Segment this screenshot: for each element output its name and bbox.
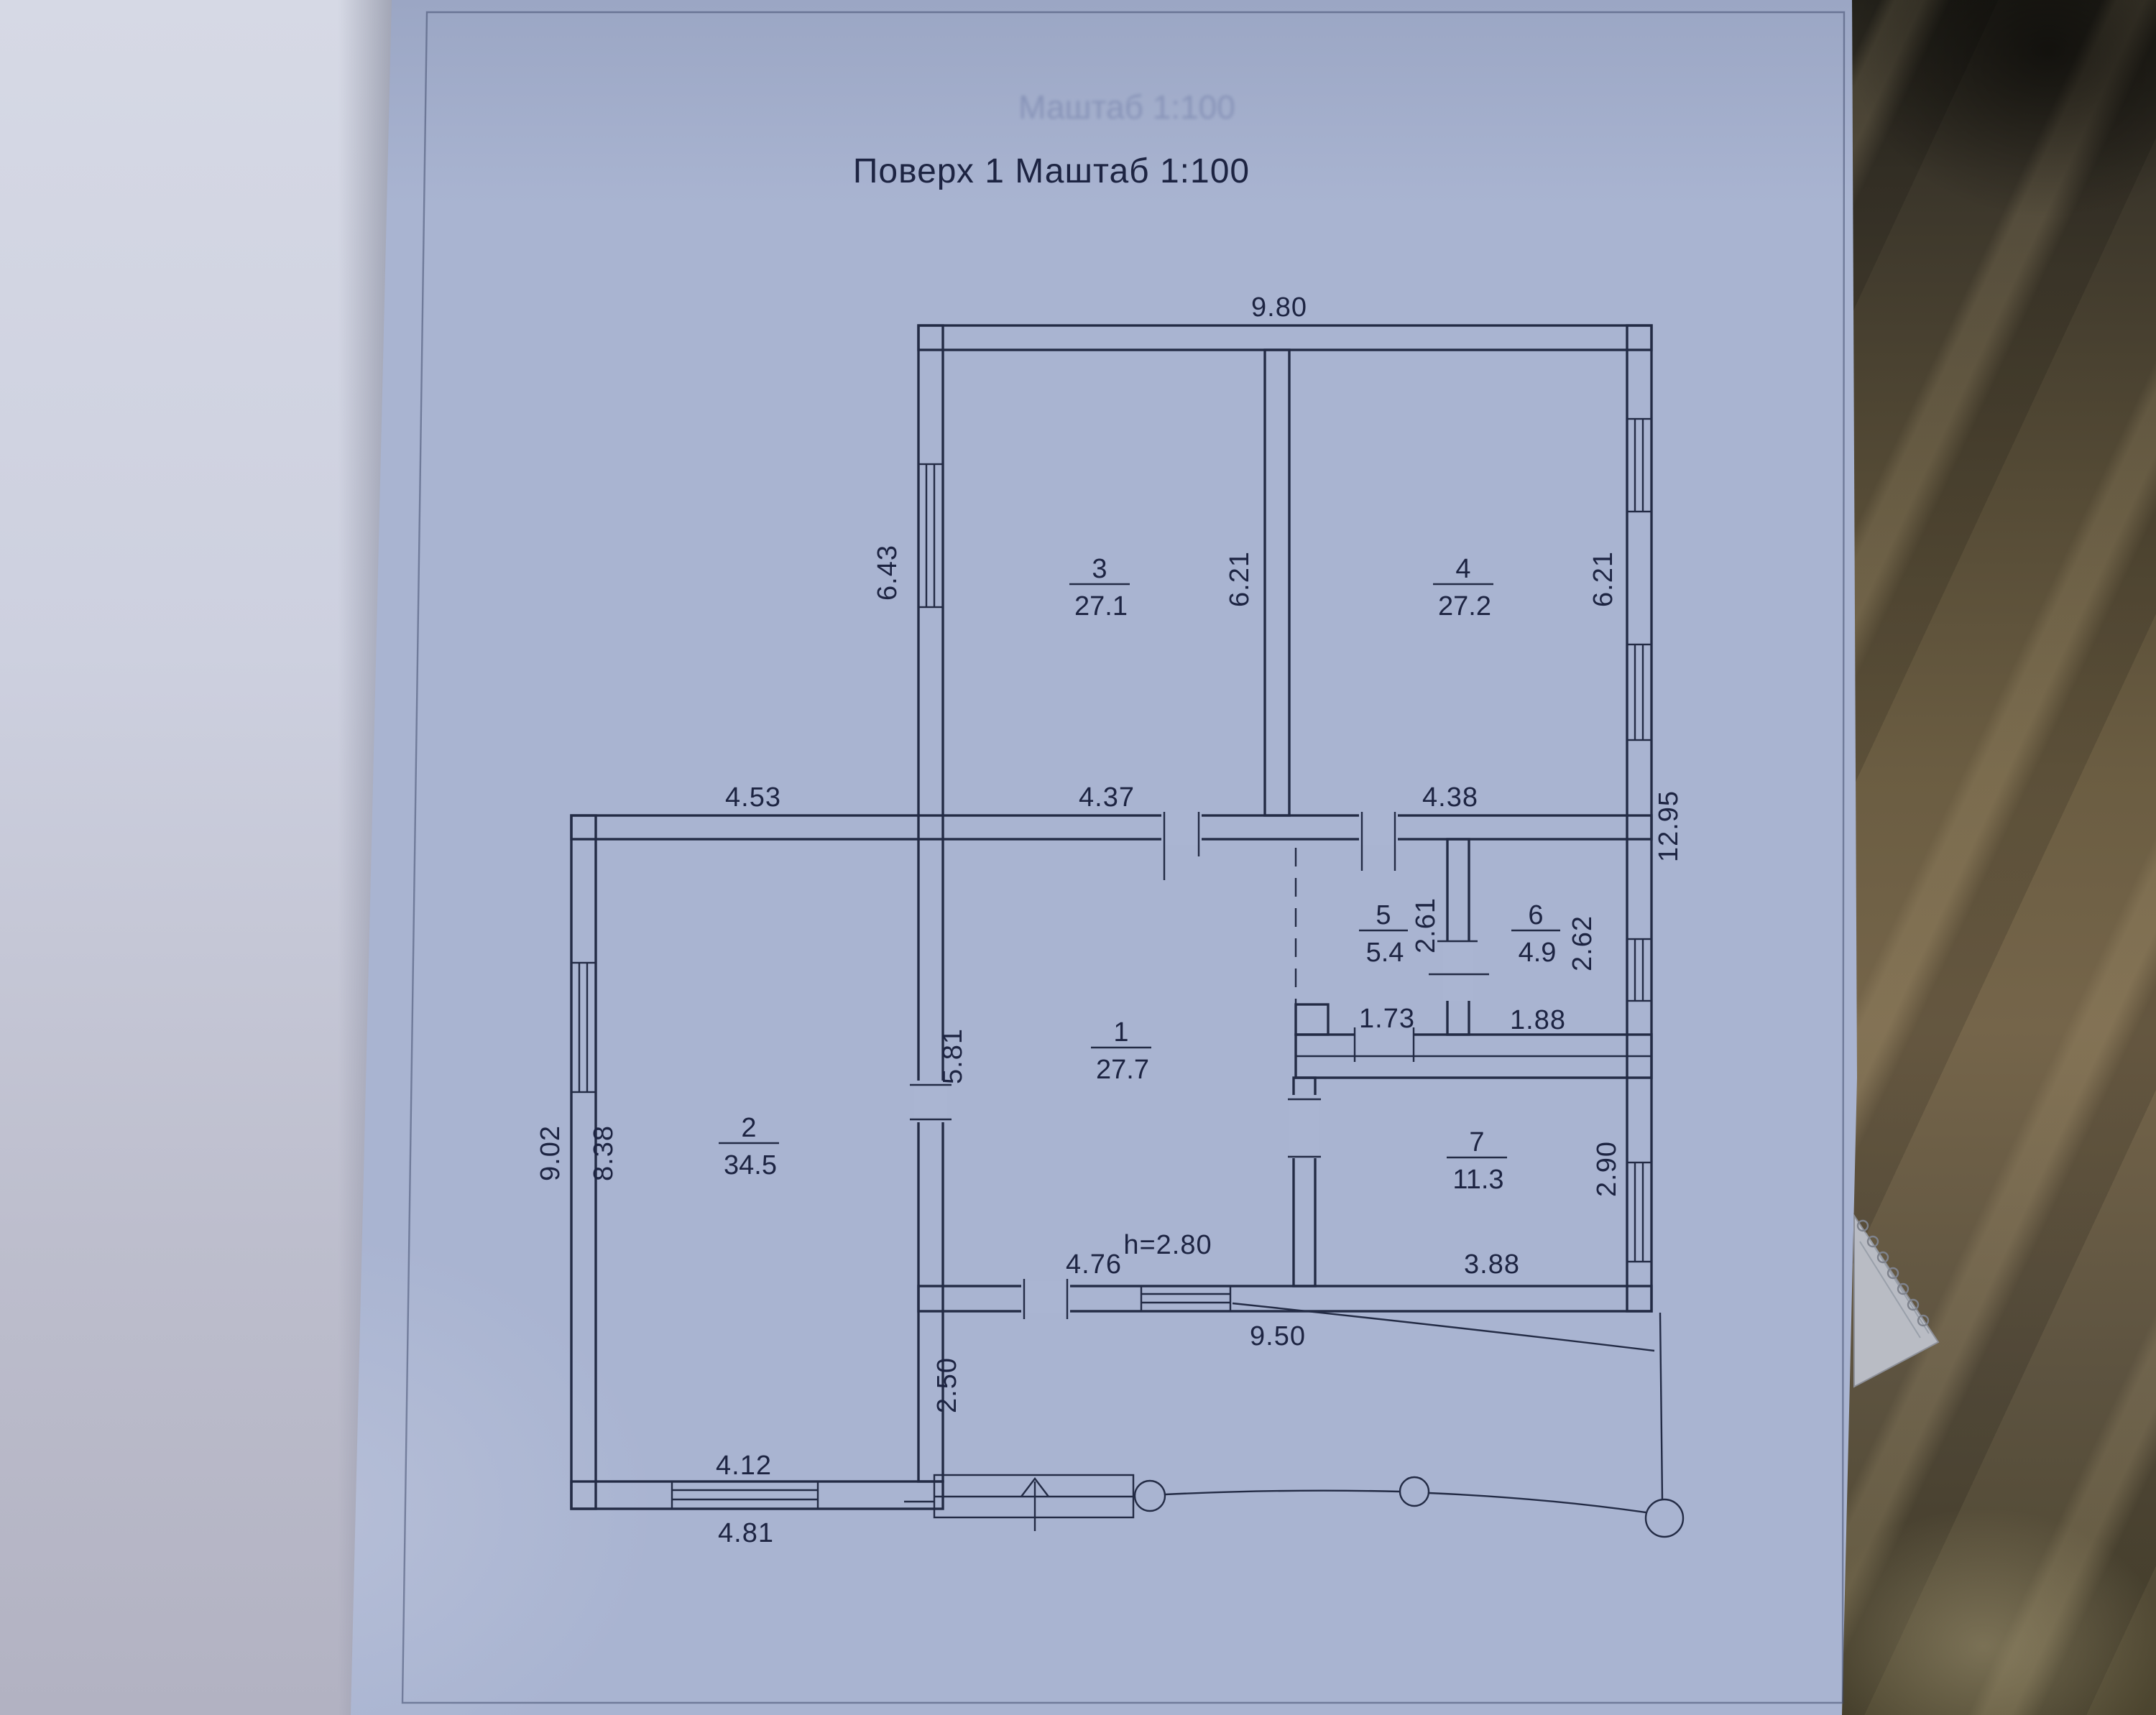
dim-room6-width: 1.88 bbox=[1510, 1005, 1566, 1035]
svg-text:1: 1 bbox=[1113, 1017, 1128, 1048]
dim-room5-width: 1.73 bbox=[1359, 1004, 1415, 1034]
dim-room6-depth: 2.62 bbox=[1567, 915, 1598, 971]
room-label-5: 55.4 bbox=[1359, 900, 1408, 968]
dim-top-width: 9.80 bbox=[1251, 292, 1307, 323]
dim-terrace-width: 9.50 bbox=[1250, 1321, 1306, 1351]
dim-room2-depth: 8.38 bbox=[589, 1125, 619, 1181]
dim-room2-bot-outer: 4.81 bbox=[718, 1518, 774, 1548]
room-labels: 127.7 234.5 327.1 427.2 55.4 64.9 711.3 bbox=[719, 554, 1560, 1195]
dim-room1-width: 4.37 bbox=[1079, 782, 1135, 813]
svg-text:5.4: 5.4 bbox=[1366, 938, 1404, 968]
svg-text:27.2: 27.2 bbox=[1438, 591, 1491, 621]
terrace-right-edge bbox=[1660, 1313, 1662, 1499]
svg-text:11.3: 11.3 bbox=[1452, 1165, 1503, 1195]
dim-room3-depth: 6.21 bbox=[1225, 551, 1255, 607]
column-2 bbox=[1400, 1477, 1429, 1506]
dim-ceiling-height: h=2.80 bbox=[1123, 1230, 1212, 1260]
dimension-labels-vertical: 6.43 6.21 6.21 12.95 2.61 2.62 5.81 9.02… bbox=[535, 545, 1684, 1413]
column-1 bbox=[1135, 1481, 1165, 1511]
dim-left-outer: 9.02 bbox=[535, 1125, 566, 1181]
dim-mid-right: 4.38 bbox=[1422, 782, 1478, 813]
svg-text:5: 5 bbox=[1376, 900, 1391, 930]
dim-porch-depth: 2.50 bbox=[932, 1357, 962, 1413]
svg-text:4: 4 bbox=[1455, 554, 1470, 584]
dim-mid-left: 4.53 bbox=[725, 782, 781, 813]
dim-room1-depth: 5.81 bbox=[938, 1028, 968, 1084]
svg-text:27.7: 27.7 bbox=[1096, 1055, 1149, 1085]
windows bbox=[571, 419, 1651, 1509]
svg-text:2: 2 bbox=[741, 1113, 756, 1143]
dim-room2-bot-inner: 4.12 bbox=[716, 1451, 772, 1481]
dim-room7-width: 3.88 bbox=[1464, 1249, 1520, 1280]
room-label-4: 427.2 bbox=[1433, 554, 1493, 621]
entry-arrow bbox=[1021, 1479, 1049, 1531]
room-label-3: 327.1 bbox=[1069, 554, 1130, 621]
dim-left-upper: 6.43 bbox=[872, 545, 903, 601]
svg-text:27.1: 27.1 bbox=[1074, 591, 1128, 621]
svg-text:6: 6 bbox=[1528, 900, 1543, 930]
room-label-2: 234.5 bbox=[719, 1113, 779, 1180]
dim-room7-depth: 2.90 bbox=[1592, 1141, 1622, 1197]
dim-room1-bottom: 4.76 bbox=[1066, 1249, 1122, 1280]
dim-room4-depth: 6.21 bbox=[1588, 551, 1618, 607]
svg-text:34.5: 34.5 bbox=[724, 1150, 777, 1180]
room-label-7: 711.3 bbox=[1447, 1127, 1507, 1195]
torn-page-corner bbox=[1854, 1216, 1938, 1387]
svg-text:4.9: 4.9 bbox=[1519, 938, 1557, 968]
room-label-1: 127.7 bbox=[1091, 1017, 1151, 1085]
photo-of-floor-plan: Маштаб 1:100 Поверх 1 Маштаб 1:100 bbox=[0, 0, 2156, 1715]
dim-right-total: 12.95 bbox=[1654, 790, 1684, 862]
floor-plan-drawing: Маштаб 1:100 Поверх 1 Маштаб 1:100 bbox=[0, 0, 2156, 1715]
room-label-6: 64.9 bbox=[1511, 900, 1560, 968]
plan-title: Поверх 1 Маштаб 1:100 bbox=[853, 152, 1250, 190]
bleed-through-title: Маштаб 1:100 bbox=[1018, 88, 1235, 126]
dim-room5-depth: 2.61 bbox=[1411, 897, 1441, 953]
column-3 bbox=[1646, 1499, 1683, 1537]
terrace-front-edge bbox=[1165, 1491, 1646, 1512]
svg-text:3: 3 bbox=[1092, 554, 1107, 584]
svg-text:7: 7 bbox=[1469, 1127, 1484, 1157]
